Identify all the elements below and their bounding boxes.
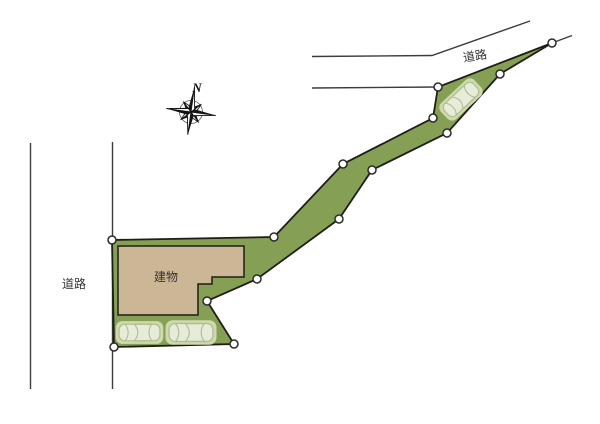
boundary-vertex-marker	[339, 160, 347, 168]
boundary-vertex-marker	[368, 166, 376, 174]
boundary-vertex-marker	[443, 129, 451, 137]
car-icon	[116, 321, 164, 344]
road-label-left: 道路	[62, 276, 86, 291]
boundary-vertex-marker	[548, 39, 556, 47]
car-icon	[166, 320, 217, 344]
boundary-vertex-marker	[434, 83, 442, 91]
compass-rose-icon	[163, 84, 219, 138]
boundary-vertex-marker	[335, 215, 343, 223]
boundary-vertex-marker	[108, 236, 116, 244]
boundary-vertex-marker	[230, 340, 238, 348]
boundary-vertex-marker	[110, 343, 118, 351]
road-label-top: 道路	[462, 46, 488, 65]
site-plan-canvas: N 道路 道路 建物	[0, 0, 600, 424]
boundary-vertex-marker	[203, 297, 211, 305]
boundary-vertex-marker	[253, 275, 261, 283]
boundary-vertex-marker	[429, 114, 437, 122]
road-top-upper-edge	[312, 21, 530, 57]
road-top-lower-edge	[312, 87, 437, 88]
building-label: 建物	[154, 270, 178, 284]
site-plan-page: N 道路 道路 建物	[0, 0, 600, 424]
boundary-vertex-marker	[496, 70, 504, 78]
boundary-vertex-marker	[270, 233, 278, 241]
compass-north-label: N	[191, 80, 202, 95]
